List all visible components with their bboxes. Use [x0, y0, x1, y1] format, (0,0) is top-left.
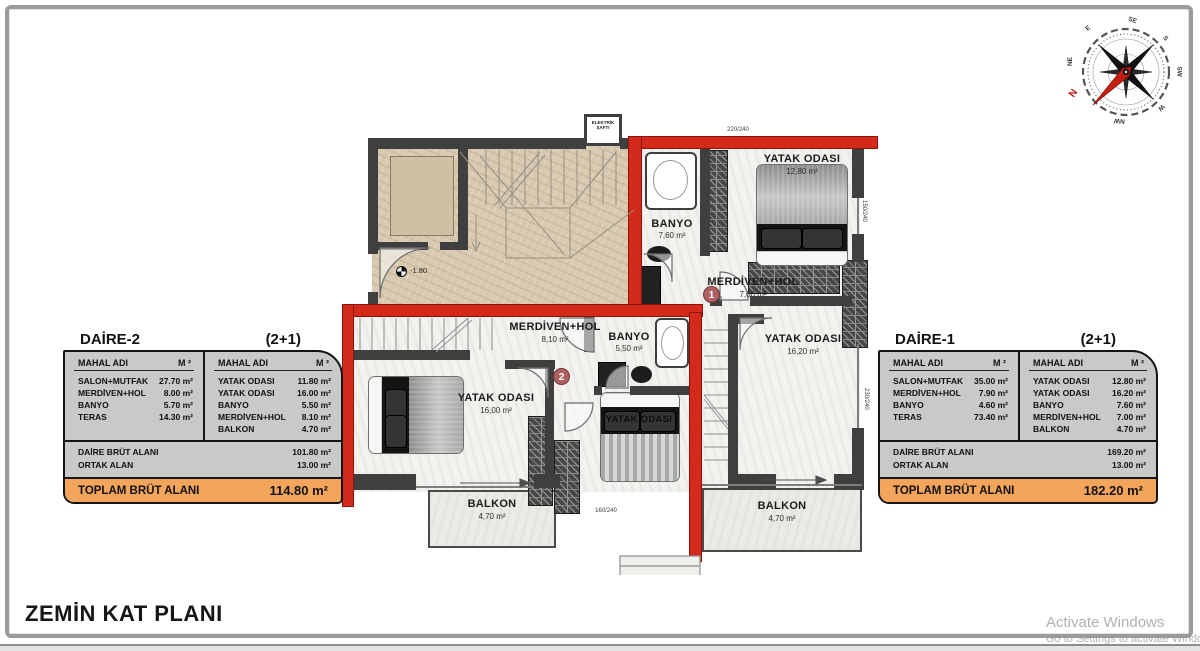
column-header: MAHAL ADI [893, 358, 943, 368]
wall-segment [440, 242, 468, 250]
table-row: MERDİVEN+HOL7.00 m² [1020, 411, 1156, 423]
wall-segment [728, 314, 738, 482]
total-label: TOPLAM BRÜT ALANI [893, 485, 1014, 497]
bottom-divider [0, 644, 1200, 651]
wall-segment [545, 368, 554, 478]
wall-segment [594, 386, 602, 395]
dimension-label: 160/240 [584, 508, 628, 514]
column-header: M ² [993, 358, 1006, 368]
compass-label: NE [1067, 57, 1074, 66]
watermark-line1: Activate Windows [1046, 614, 1200, 631]
table-row: YATAK ODASI16.20 m² [1020, 387, 1156, 399]
room-area: 7,00 m² [724, 290, 782, 299]
watermark-line2: Go to Settings to activate Windows. [1046, 631, 1200, 648]
level-marker-value: -1.80 [410, 266, 427, 275]
wall-segment [852, 234, 864, 262]
table-row: BALKON4.70 m² [1020, 423, 1156, 435]
table-total: TOPLAM BRÜT ALANI 182.20 m² [880, 477, 1156, 502]
table-column-right: MAHAL ADIM ² YATAK ODASI12.80 m² YATAK O… [1018, 352, 1156, 440]
dimension-label: 230/240 [863, 388, 869, 410]
room-label: MERDİVEN+HOL [496, 321, 614, 333]
column-header: M ² [1131, 358, 1144, 368]
apartment-number-badge: 1 [703, 286, 720, 303]
table-column-left: MAHAL ADIM ² SALON+MUTFAK35.00 m² MERDİV… [880, 352, 1018, 440]
dimension-label: 220/240 [712, 127, 764, 133]
wall-segment [368, 138, 378, 254]
table-box: MAHAL ADIM ² SALON+MUTFAK27.70 m² MERDİV… [63, 350, 343, 504]
room-label: YATAK ODASI [444, 392, 548, 404]
table-summary: DAİRE BRÜT ALANI101.80 m² ORTAK ALAN13.0… [65, 440, 341, 477]
window [416, 486, 534, 488]
table-box: MAHAL ADIM ² SALON+MUTFAK35.00 m² MERDİV… [878, 350, 1158, 504]
summary-row: DAİRE BRÜT ALANI101.80 m² [65, 446, 341, 459]
electric-shaft: ELEKTRİK ŞAFTI [584, 114, 622, 146]
table-total: TOPLAM BRÜT ALANI 114.80 m² [65, 477, 341, 502]
table-row: YATAK ODASI11.80 m² [205, 375, 341, 387]
area-table-daire-2: DAİRE-2 (2+1) MAHAL ADIM ² SALON+MUTFAK2… [63, 331, 343, 504]
apartment-number-badge: 2 [553, 368, 570, 385]
toilet [647, 246, 671, 262]
wall-segment [352, 474, 416, 490]
compass-label: NW [1114, 117, 1125, 125]
page-title: ZEMİN KAT PLANI [25, 601, 223, 627]
table-row: TERAS14.30 m² [65, 411, 203, 423]
sink [598, 362, 626, 387]
table-title: DAİRE-2 (2+1) [63, 331, 343, 348]
red-boundary-wall [628, 136, 642, 317]
shower [645, 152, 697, 210]
column-header: MAHAL ADI [1033, 358, 1083, 368]
room-label: BALKON [740, 500, 824, 512]
room-area: 16,20 m² [766, 347, 840, 356]
room-area: 4,70 m² [748, 514, 816, 523]
wall-segment [834, 474, 864, 490]
table-column-right: MAHAL ADIM ² YATAK ODASI11.80 m² YATAK O… [203, 352, 341, 440]
floor-plan-page: ELEKTRİK ŞAFTI [0, 0, 1200, 651]
table-title: DAİRE-1 (2+1) [878, 331, 1158, 348]
room-label: YATAK ODASI [748, 333, 858, 345]
window [857, 198, 859, 234]
table-row: SALON+MUTFAK27.70 m² [65, 375, 203, 387]
summary-row: ORTAK ALAN13.00 m² [880, 459, 1156, 472]
table-row: SALON+MUTFAK35.00 m² [880, 375, 1018, 387]
compass-rose: E SE S SW W NW N NE [1066, 16, 1186, 128]
wall-segment [700, 148, 710, 256]
apartment-type: (2+1) [266, 331, 301, 348]
compass-label: SW [1176, 66, 1183, 76]
table-row: BALKON4.70 m² [205, 423, 341, 435]
room-area: 4,70 m² [456, 512, 528, 521]
table-row: BANYO7.60 m² [1020, 399, 1156, 411]
table-row: BANYO4.60 m² [880, 399, 1018, 411]
total-label: TOPLAM BRÜT ALANI [78, 485, 199, 497]
column-header: M ² [178, 358, 191, 368]
table-summary: DAİRE BRÜT ALANI169.20 m² ORTAK ALAN13.0… [880, 440, 1156, 477]
room-area: 12,80 m² [768, 167, 836, 176]
room-area: 7,60 m² [644, 231, 700, 240]
wall-segment [534, 474, 560, 488]
red-boundary-wall [342, 304, 354, 507]
compass-icon [1066, 16, 1186, 128]
activation-watermark: Activate Windows Go to Settings to activ… [1046, 614, 1200, 648]
wall-segment [630, 386, 690, 395]
table-row: TERAS73.40 m² [880, 411, 1018, 423]
wall-segment [368, 138, 586, 149]
window [702, 484, 862, 486]
table-row: MERDİVEN+HOL8.00 m² [65, 387, 203, 399]
room-area: 8,10 m² [522, 335, 588, 344]
red-boundary-wall [689, 312, 702, 562]
dimension-label: 150/240 [861, 200, 867, 222]
toilet [631, 366, 652, 383]
table-row: MERDİVEN+HOL7.90 m² [880, 387, 1018, 399]
table-row: YATAK ODASI16.00 m² [205, 387, 341, 399]
wall-segment [738, 314, 764, 324]
apartment-name: DAİRE-2 [80, 331, 140, 348]
summary-row: DAİRE BRÜT ALANI169.20 m² [880, 446, 1156, 459]
red-boundary-wall [342, 304, 703, 317]
room-label: YATAK ODASI [596, 414, 682, 425]
red-boundary-wall [628, 136, 878, 149]
table-row: YATAK ODASI12.80 m² [1020, 375, 1156, 387]
wall-segment [352, 350, 470, 360]
shower [655, 318, 689, 368]
table-column-left: MAHAL ADIM ² SALON+MUTFAK27.70 m² MERDİV… [65, 352, 203, 440]
room-area: 5,50 m² [600, 344, 658, 353]
electric-shaft-label: ELEKTRİK ŞAFTI [592, 120, 615, 130]
window [857, 344, 859, 428]
apartment-type: (2+1) [1081, 331, 1116, 348]
room-label: BANYO [641, 218, 703, 230]
table-row: MERDİVEN+HOL8.10 m² [205, 411, 341, 423]
column-header: M ² [316, 358, 329, 368]
wall-segment [728, 474, 776, 490]
room-label: YATAK ODASI [748, 153, 856, 165]
elevator-cabin [390, 156, 454, 236]
room-label: BALKON [448, 498, 536, 510]
wall-segment [376, 242, 428, 250]
bed [368, 376, 464, 454]
bed [600, 392, 680, 482]
column-header: MAHAL ADI [78, 358, 128, 368]
apartment-name: DAİRE-1 [895, 331, 955, 348]
wall-segment [458, 138, 468, 250]
level-marker-icon [396, 266, 407, 277]
summary-row: ORTAK ALAN13.00 m² [65, 459, 341, 472]
bed [756, 164, 848, 266]
table-row: BANYO5.50 m² [205, 399, 341, 411]
room-label: BANYO [598, 331, 660, 343]
total-value: 114.80 m² [269, 483, 328, 498]
area-table-daire-1: DAİRE-1 (2+1) MAHAL ADIM ² SALON+MUTFAK3… [878, 331, 1158, 504]
room-area: 16,00 m² [458, 406, 534, 415]
table-row: BANYO5.70 m² [65, 399, 203, 411]
total-value: 182.20 m² [1084, 483, 1143, 498]
column-header: MAHAL ADI [218, 358, 268, 368]
